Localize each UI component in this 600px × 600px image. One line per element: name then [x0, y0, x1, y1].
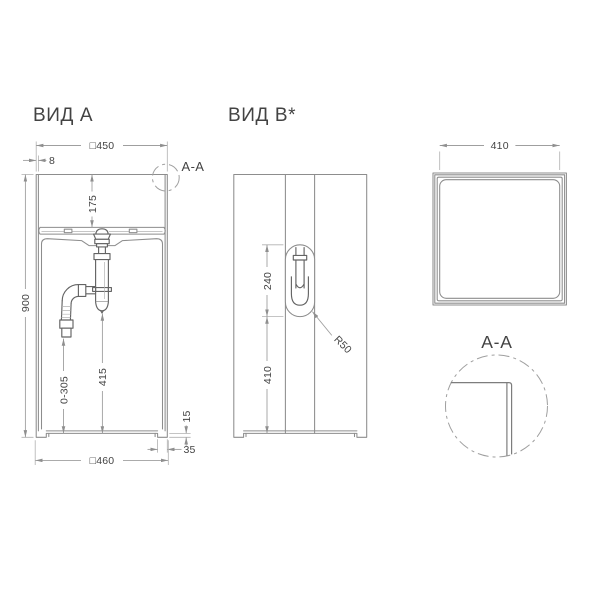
drain-flange	[96, 229, 108, 234]
outlet-coupling	[78, 285, 85, 297]
dim-slot-radius: R50	[312, 312, 354, 357]
view-a-front-view: ВИД A	[20, 105, 204, 467]
dim-slot-to-base: 410	[262, 317, 274, 434]
dim-bowl-depth: 175	[87, 175, 99, 228]
trap-nut	[94, 254, 110, 260]
view-b-title: ВИД B*	[228, 105, 296, 126]
svg-text:□450: □450	[90, 140, 115, 152]
dim-opening-width: 410	[440, 140, 560, 170]
dim-base-width: □460	[35, 440, 168, 467]
view-a-title: ВИД A	[33, 105, 93, 126]
trap-cup	[96, 302, 109, 311]
dim-outlet-range: 0-305	[58, 339, 70, 434]
outlet-elbow	[62, 285, 78, 304]
svg-text:410: 410	[262, 366, 274, 384]
svg-text:900: 900	[20, 294, 32, 312]
detail-boundary-circle	[446, 355, 548, 457]
slot-pipe	[291, 248, 308, 306]
svg-text:8: 8	[49, 155, 55, 167]
hose-end-fitting	[60, 320, 73, 328]
dim-trap-clearance: 415	[97, 314, 109, 434]
svg-text:0-305: 0-305	[58, 376, 70, 404]
svg-text:R50: R50	[331, 334, 354, 357]
svg-text:240: 240	[262, 272, 274, 290]
overflow-clip-right	[129, 229, 137, 232]
svg-text:□460: □460	[90, 455, 115, 467]
svg-text:15: 15	[181, 410, 193, 422]
basin-opening-edge	[440, 180, 560, 299]
drawing-svg: ВИД A	[0, 0, 600, 600]
dim-top-width: □450	[36, 140, 167, 172]
section-detail-a-a: A-A	[446, 332, 548, 457]
section-detail-title: A-A	[481, 332, 513, 352]
dim-rim-thickness: 8	[23, 155, 55, 171]
dim-foot-inset: 35	[148, 439, 196, 456]
section-cut-label: A-A	[182, 159, 205, 174]
overflow-clip-left	[64, 229, 72, 232]
dim-total-height: 900	[20, 175, 33, 438]
dim-foot-height: 15	[169, 410, 193, 445]
svg-text:410: 410	[491, 140, 509, 152]
top-view-outer-edge	[433, 173, 566, 305]
sink-technical-drawing: ВИД A	[0, 0, 600, 600]
section-cut-circle	[152, 164, 179, 191]
svg-text:175: 175	[87, 195, 99, 213]
svg-text:415: 415	[97, 368, 109, 386]
trap-body	[96, 260, 109, 302]
svg-text:35: 35	[184, 444, 196, 456]
top-plan-view: 410	[433, 140, 566, 305]
dim-slot-height: 240	[262, 245, 284, 317]
rim-section-lines	[451, 383, 512, 456]
view-b-side-view: ВИД B* 240 410 R50	[228, 105, 367, 437]
drain-trap-assembly	[60, 229, 112, 337]
tailpiece-pipe	[99, 247, 106, 254]
